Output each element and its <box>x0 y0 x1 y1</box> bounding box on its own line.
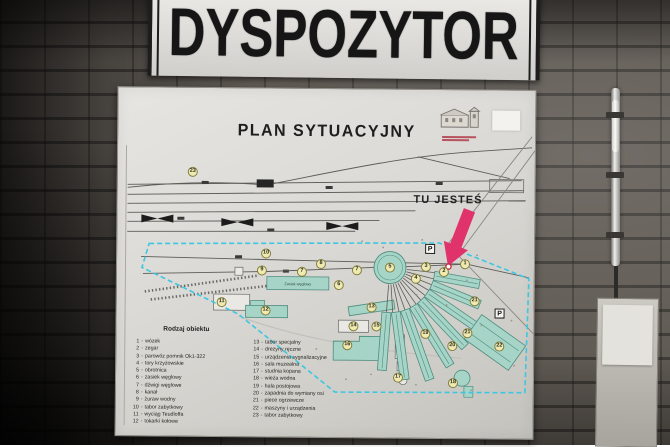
you-are-here-label: TU JESTEŚ <box>414 194 483 207</box>
rod-clamp <box>606 232 624 238</box>
depot-tracks <box>141 256 529 277</box>
legend-item-23: 23-tabor zabytkowy <box>248 412 360 420</box>
site-plan-board: PLAN SYTUACYJNY <box>114 86 536 440</box>
legend: Rodzaj obiektu 1-wózek2-zegar3-parowóz p… <box>126 321 363 435</box>
legend-column-1: 1-wózek2-zegar3-parowóz pomnik Ok1-3224-… <box>128 338 241 427</box>
you-are-here-dot <box>446 264 451 269</box>
small-wall-panel <box>595 298 659 447</box>
roundhouse-stalls <box>377 271 481 382</box>
rod-clamp <box>606 112 624 118</box>
panel-paper <box>602 305 653 366</box>
you-are-here-arrow <box>444 208 476 266</box>
dispatcher-sign-title: DYSPOZYTOR <box>168 0 519 76</box>
dispatcher-sign: DYSPOZYTOR <box>147 0 540 80</box>
rod-glass-highlight <box>612 100 619 152</box>
brick-wall-photo: DYSPOZYTOR PLAN SYTUACYJNY <box>0 0 670 445</box>
museum-logo-building <box>440 106 484 130</box>
coal-bunker-label: Zasiek węglowy <box>284 282 311 286</box>
museum-logo <box>440 106 490 140</box>
rod-clamp <box>606 172 624 178</box>
turntable-and-roundhouse <box>373 251 527 382</box>
legend-column-2: 13-tabor specjalny14-drezyny ręczne15-ur… <box>248 339 361 420</box>
track-crossovers <box>141 214 358 230</box>
small-structure <box>235 267 243 275</box>
water-tower <box>454 370 470 386</box>
blank-sticker <box>492 110 520 130</box>
platform-block <box>257 179 274 187</box>
dispatcher-sign-frame: DYSPOZYTOR <box>156 0 531 80</box>
legend-title: Rodzaj obiektu <box>126 325 246 333</box>
building-12 <box>246 305 288 317</box>
turntable <box>374 251 406 283</box>
building-11 <box>214 294 250 310</box>
legend-item-12: 12-tokarki kołowe <box>128 419 240 427</box>
legend-columns: 1-wózek2-zegar3-parowóz pomnik Ok1-3224-… <box>126 338 362 340</box>
museum-logo-text-lines <box>440 136 490 142</box>
